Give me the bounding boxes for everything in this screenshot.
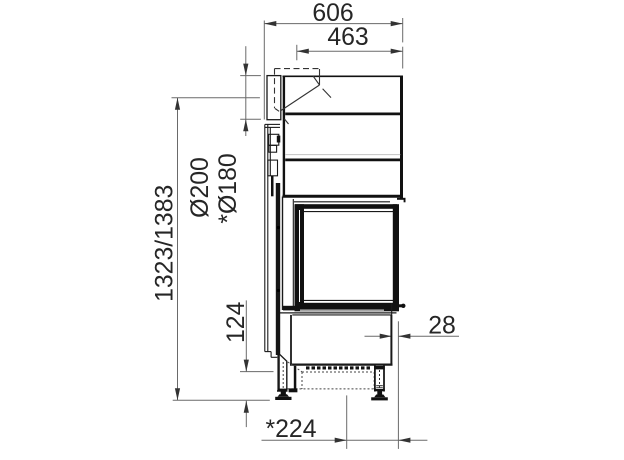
svg-text:463: 463 <box>327 24 368 51</box>
svg-text:Ø200: Ø200 <box>187 157 214 218</box>
svg-text:*Ø180: *Ø180 <box>215 153 242 223</box>
svg-text:124: 124 <box>223 301 250 343</box>
svg-text:28: 28 <box>428 312 456 339</box>
svg-text:606: 606 <box>312 0 353 27</box>
svg-text:*224: *224 <box>265 416 316 443</box>
svg-text:1323/1383: 1323/1383 <box>152 185 179 302</box>
